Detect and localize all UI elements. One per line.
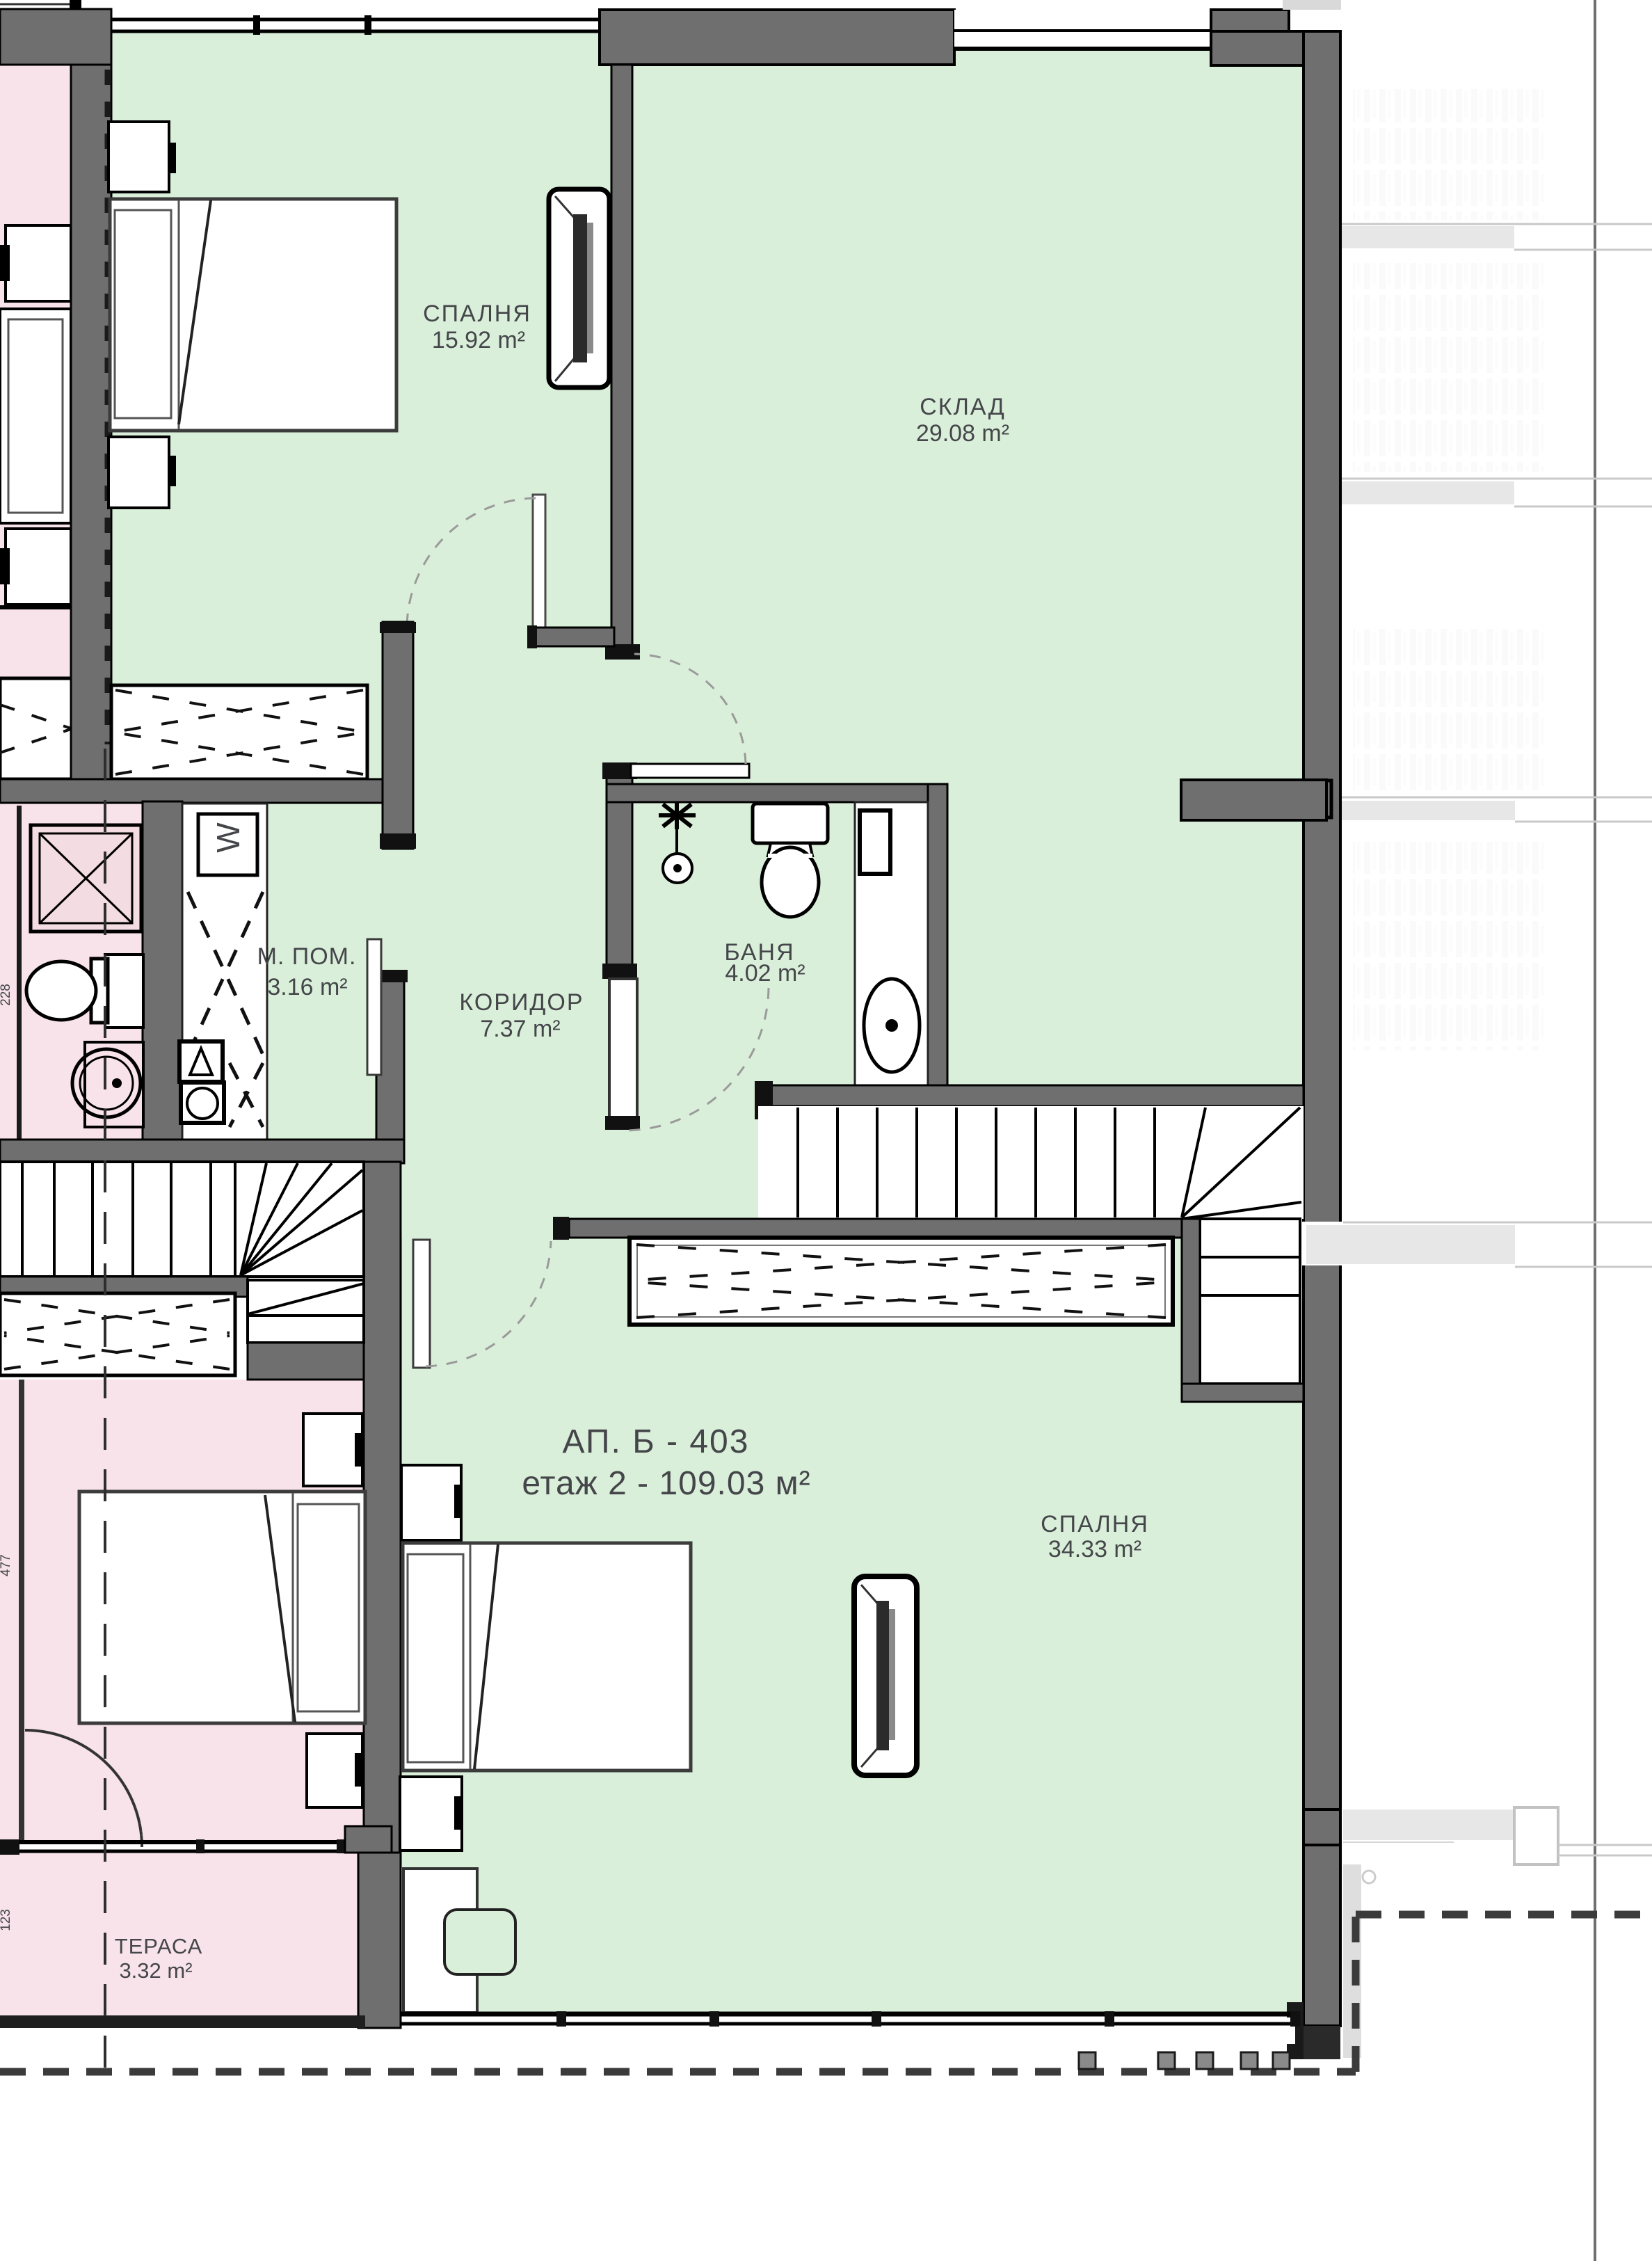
svg-text:ТЕРАСА: ТЕРАСА [115, 1934, 203, 1958]
svg-text:КОРИДОР: КОРИДОР [459, 989, 584, 1016]
svg-text:етаж 2 - 109.03 м²: етаж 2 - 109.03 м² [522, 1465, 810, 1502]
svg-text:3.32 m²: 3.32 m² [119, 1958, 192, 1983]
svg-text:228: 228 [0, 984, 13, 1006]
svg-text:М. ПОМ.: М. ПОМ. [257, 943, 357, 970]
svg-text:4.02 m²: 4.02 m² [725, 960, 805, 986]
svg-text:W: W [210, 822, 246, 853]
svg-text:7.37 m²: 7.37 m² [480, 1016, 560, 1042]
svg-text:477: 477 [0, 1554, 13, 1576]
svg-text:3.16 m²: 3.16 m² [267, 974, 347, 1000]
svg-text:123: 123 [0, 1909, 13, 1931]
svg-text:29.08 m²: 29.08 m² [916, 420, 1009, 447]
svg-text:СКЛАД: СКЛАД [920, 394, 1006, 420]
svg-text:СПАЛНЯ: СПАЛНЯ [423, 301, 531, 327]
svg-text:15.92 m²: 15.92 m² [432, 327, 525, 353]
svg-text:АП. Б - 403: АП. Б - 403 [563, 1423, 750, 1460]
svg-text:34.33 m²: 34.33 m² [1048, 1536, 1141, 1563]
svg-text:СПАЛНЯ: СПАЛНЯ [1041, 1511, 1149, 1537]
